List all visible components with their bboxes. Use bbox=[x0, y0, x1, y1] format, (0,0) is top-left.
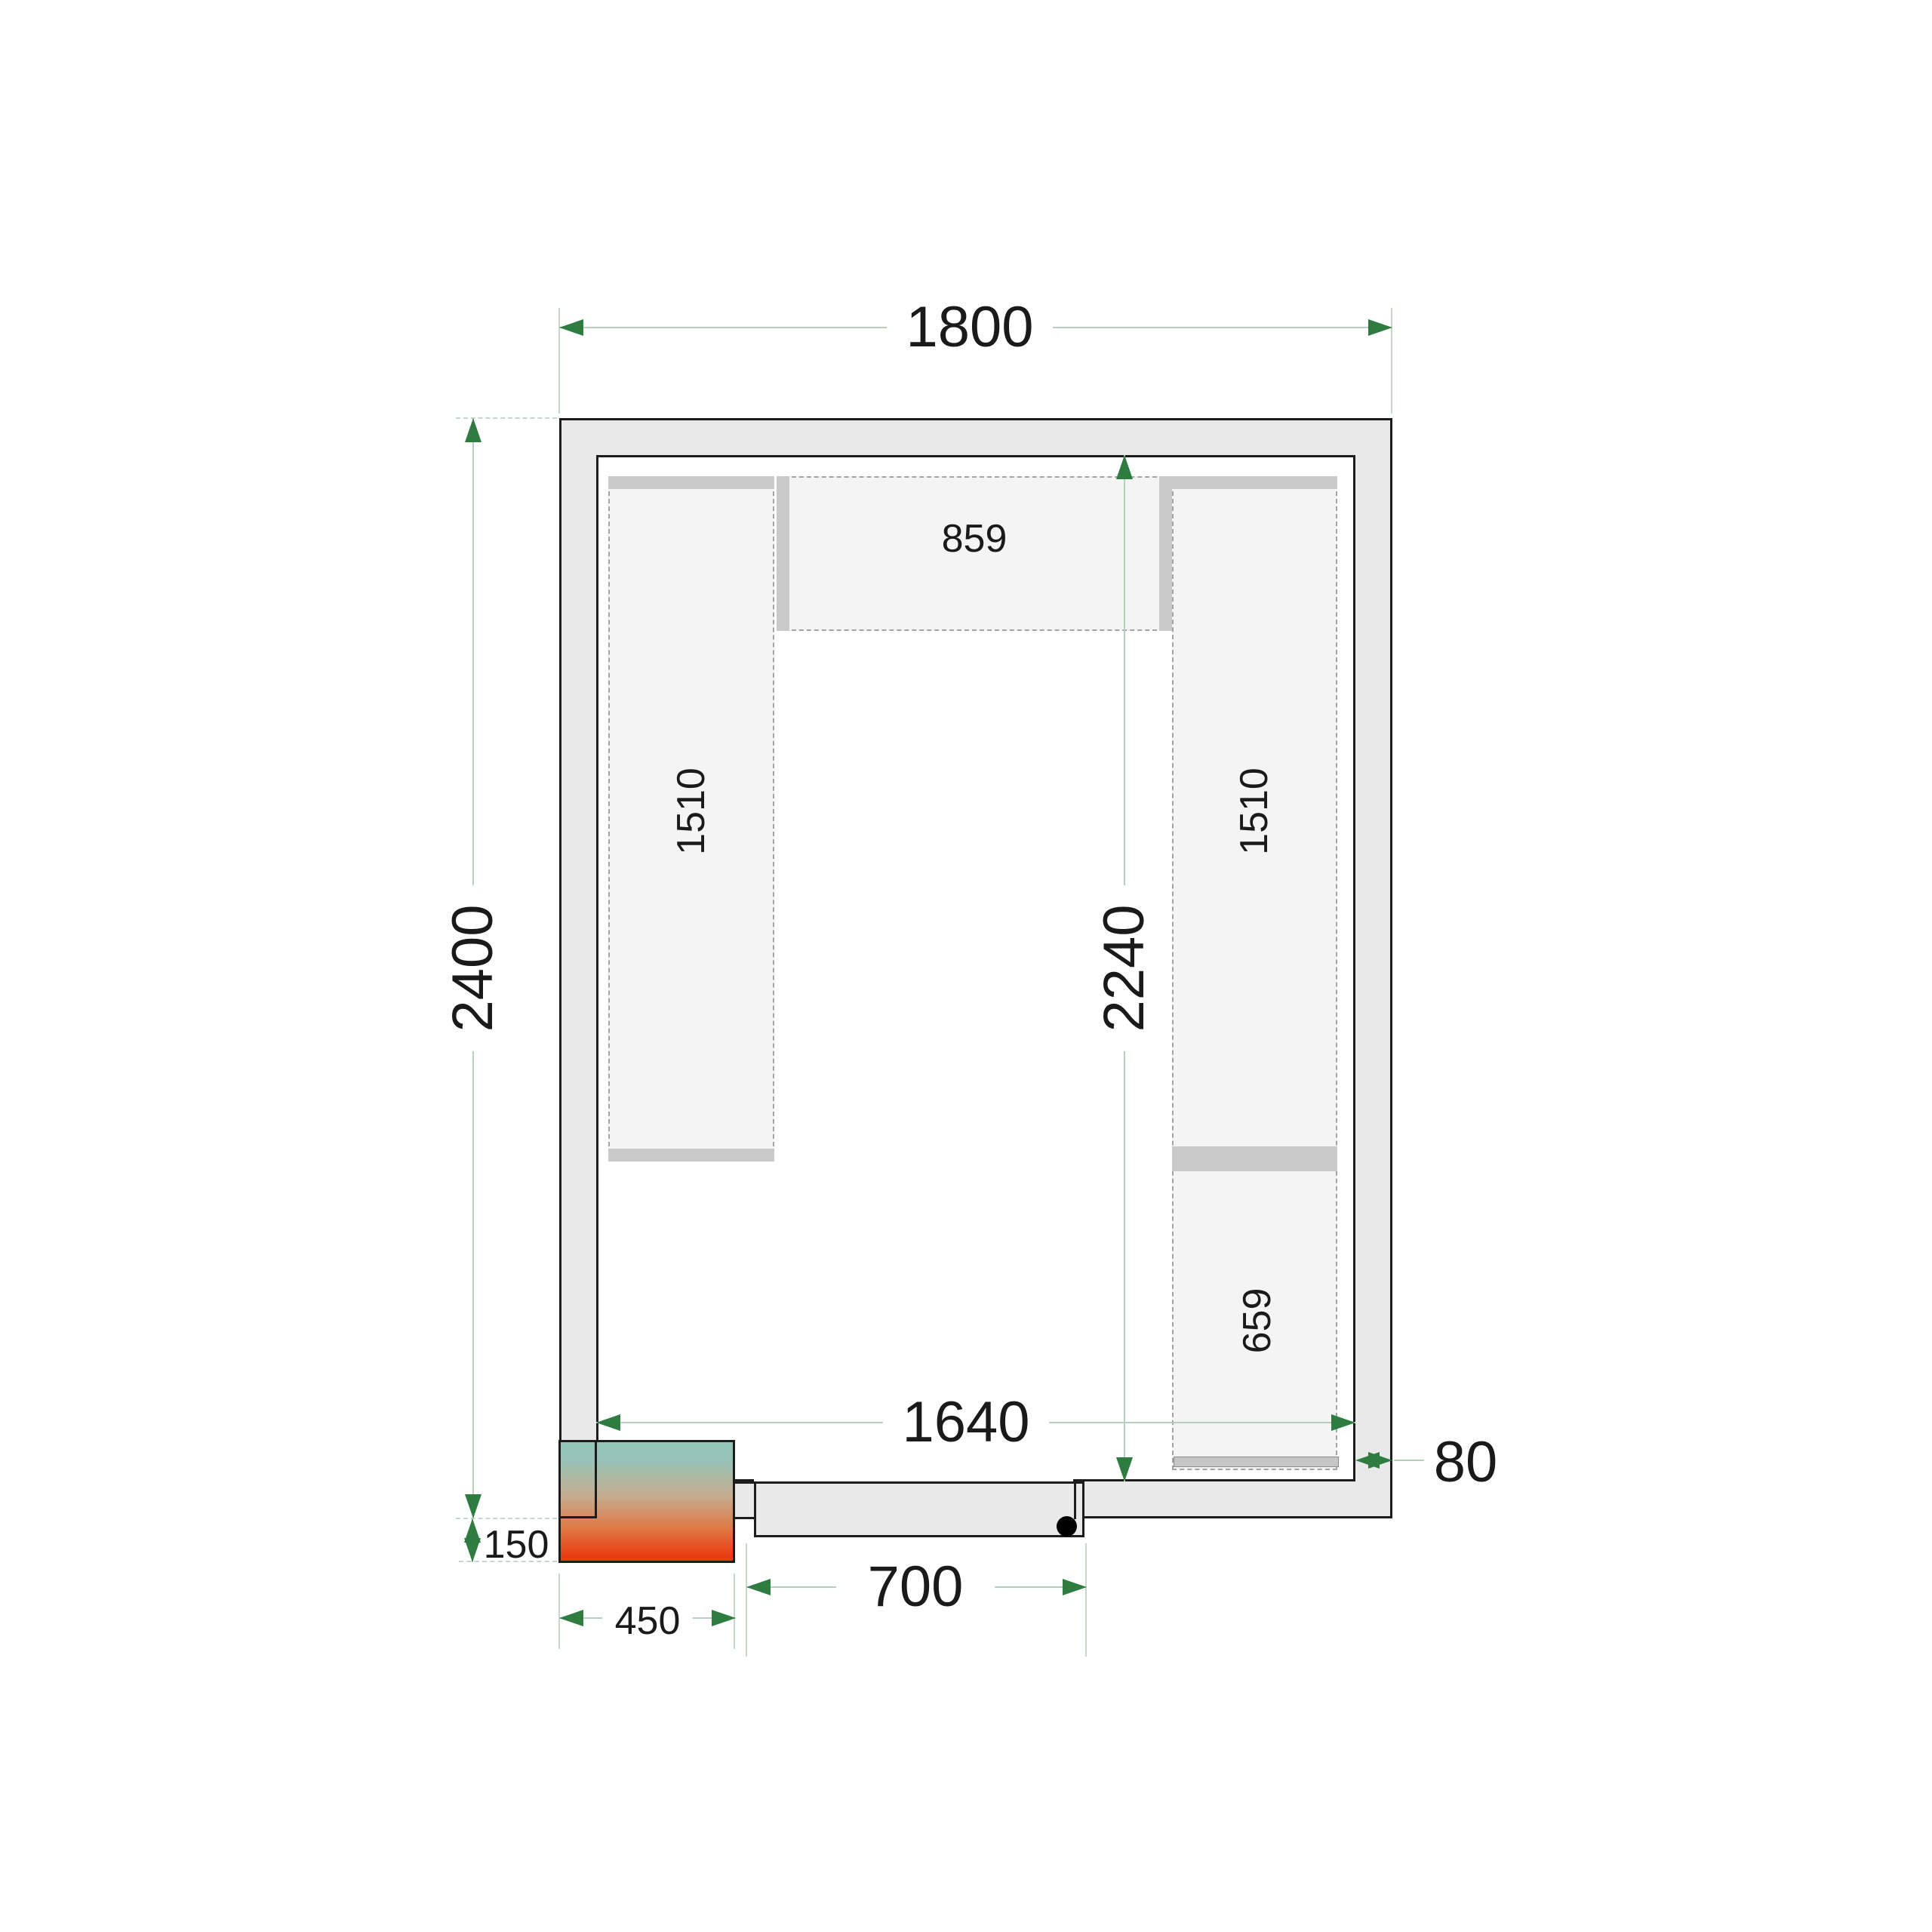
dim-door-width-extension-right bbox=[1085, 1543, 1087, 1657]
dim-interior-width-line-left bbox=[596, 1422, 883, 1423]
dim-outer-width-line-right bbox=[1053, 327, 1392, 328]
dim-outer-height-label: 2400 bbox=[444, 870, 503, 1066]
dim-interior-height-line-top bbox=[1124, 455, 1125, 885]
shelf-top-bracket-left bbox=[777, 476, 789, 631]
dim-unit-width-label: 450 bbox=[602, 1598, 693, 1644]
dim-outer-width-line-left bbox=[559, 327, 887, 328]
shelf-right-bracket-bottom bbox=[1174, 1457, 1339, 1467]
dim-outer-height-arrow-up bbox=[465, 418, 481, 442]
dim-unit-width-arrow-right bbox=[712, 1610, 736, 1626]
dim-interior-height-arrow-up bbox=[1116, 455, 1133, 479]
dim-interior-width-label: 1640 bbox=[883, 1393, 1049, 1452]
dim-interior-width-arrow-right bbox=[1331, 1414, 1355, 1431]
dim-interior-width-line-right bbox=[1049, 1422, 1355, 1423]
floor-plan-canvas: 1510 859 1510 659 1800 2400 2240 1640 80… bbox=[0, 0, 1932, 1932]
door-handle-dot bbox=[1057, 1516, 1077, 1537]
shelf-right-lower-length-label: 659 bbox=[1235, 1207, 1280, 1434]
door-leaf bbox=[754, 1481, 1084, 1537]
dim-outer-width-arrow-right bbox=[1368, 319, 1392, 336]
dim-outer-height-line-top bbox=[472, 418, 474, 885]
shelf-left-bracket-top bbox=[608, 476, 774, 489]
door-wall-edge-line bbox=[1074, 1481, 1076, 1519]
dim-outer-height-line-bottom bbox=[472, 1051, 474, 1518]
dim-interior-height-line-bottom bbox=[1124, 1051, 1125, 1481]
dim-unit-width-arrow-left bbox=[559, 1610, 583, 1626]
dim-door-width-extension-left bbox=[746, 1543, 747, 1657]
dim-outer-width-arrow-left bbox=[559, 319, 583, 336]
dim-interior-height-label: 2240 bbox=[1095, 870, 1154, 1066]
shelf-right-upper-length-label: 1510 bbox=[1232, 698, 1277, 924]
dim-outer-width-label: 1800 bbox=[887, 298, 1053, 357]
dim-door-width-arrow-left bbox=[746, 1579, 771, 1595]
shelf-left-length-label: 1510 bbox=[669, 698, 714, 924]
dim-outer-height-arrow-down bbox=[465, 1494, 481, 1518]
shelf-left-bracket-bottom bbox=[608, 1149, 774, 1161]
dim-interior-height-arrow-down bbox=[1116, 1457, 1133, 1481]
dim-interior-width-arrow-left bbox=[596, 1414, 620, 1431]
shelf-top-length-label: 859 bbox=[861, 516, 1088, 561]
dim-unit-offset-label: 150 bbox=[478, 1522, 554, 1567]
cooling-unit bbox=[558, 1440, 735, 1563]
door-frame-stub bbox=[733, 1481, 756, 1519]
shelf-right-bracket-top bbox=[1172, 476, 1337, 489]
shelf-right-bracket-middle bbox=[1172, 1146, 1337, 1171]
dim-wall-thickness-arrow-right bbox=[1368, 1452, 1392, 1469]
wall-edge-over-cooler-horizontal bbox=[558, 1516, 597, 1518]
dim-door-width-arrow-right bbox=[1063, 1579, 1087, 1595]
dim-wall-thickness-label: 80 bbox=[1413, 1433, 1518, 1492]
wall-edge-over-cooler-vertical bbox=[595, 1440, 597, 1518]
dim-door-width-label: 700 bbox=[836, 1558, 995, 1617]
shelf-top-bracket-right bbox=[1159, 476, 1172, 631]
